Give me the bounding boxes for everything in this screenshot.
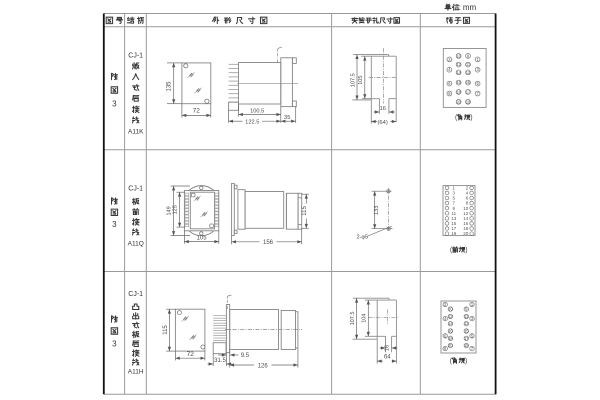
svg-text:126: 126 (258, 363, 269, 369)
svg-text:156: 156 (263, 240, 274, 246)
svg-text:3: 3 (112, 339, 117, 348)
svg-text:19: 19 (464, 343, 469, 348)
svg-text:): ) (470, 115, 472, 122)
svg-text:14: 14 (456, 70, 461, 75)
svg-text:115: 115 (302, 206, 308, 216)
svg-text:11: 11 (466, 62, 471, 67)
svg-text:20: 20 (463, 231, 469, 236)
svg-text:CJ-1: CJ-1 (128, 186, 143, 193)
svg-text:13: 13 (464, 321, 469, 326)
svg-text:10: 10 (448, 307, 453, 312)
svg-text:133: 133 (374, 206, 380, 216)
svg-text:15: 15 (466, 80, 471, 85)
svg-text:CJ-1: CJ-1 (128, 53, 143, 60)
svg-text:105: 105 (197, 236, 208, 242)
svg-text:16: 16 (448, 329, 453, 334)
svg-text:12: 12 (448, 314, 453, 319)
svg-text:CJ-1: CJ-1 (128, 291, 143, 298)
svg-text:122.5: 122.5 (245, 119, 259, 125)
svg-text:100.5: 100.5 (250, 108, 264, 114)
svg-text:3: 3 (112, 220, 117, 229)
svg-text:149: 149 (166, 206, 172, 215)
svg-text:2-φ5: 2-φ5 (356, 234, 368, 240)
svg-text:18: 18 (448, 336, 453, 341)
svg-text:72: 72 (193, 108, 201, 115)
svg-text:15: 15 (464, 329, 469, 334)
svg-text:11: 11 (464, 314, 469, 319)
svg-text:mm: mm (463, 3, 477, 12)
svg-text:A11Q: A11Q (128, 240, 144, 247)
svg-text:14: 14 (448, 321, 453, 326)
svg-text:105: 105 (358, 76, 364, 85)
svg-text:19: 19 (451, 231, 457, 236)
svg-text:A11H: A11H (128, 368, 144, 375)
svg-text:17: 17 (464, 336, 469, 341)
svg-text:10: 10 (456, 53, 461, 58)
svg-text:A11K: A11K (128, 128, 144, 135)
svg-text:3: 3 (112, 99, 117, 108)
svg-text:18: 18 (456, 89, 461, 94)
svg-text::: : (459, 3, 461, 12)
svg-text:16: 16 (385, 345, 391, 351)
svg-text:9.5: 9.5 (241, 353, 250, 359)
svg-text:20: 20 (448, 343, 453, 348)
svg-text:(64): (64) (377, 120, 387, 126)
svg-text:20: 20 (456, 99, 461, 104)
svg-text:72: 72 (187, 351, 195, 358)
svg-text:17: 17 (466, 89, 471, 94)
svg-text:): ) (465, 358, 467, 365)
svg-text:19: 19 (466, 99, 471, 104)
svg-text:16: 16 (380, 106, 386, 112)
svg-text:64: 64 (384, 355, 391, 361)
svg-text:): ) (465, 247, 467, 254)
svg-text:35: 35 (284, 115, 290, 121)
svg-text:104: 104 (362, 314, 368, 323)
svg-text:135: 135 (166, 81, 172, 92)
svg-text:13: 13 (466, 70, 471, 75)
svg-text:12: 12 (456, 62, 461, 67)
svg-text:107.5: 107.5 (350, 312, 356, 326)
svg-text:125: 125 (173, 205, 179, 214)
svg-text:115: 115 (163, 325, 169, 335)
svg-text:31.5: 31.5 (214, 358, 226, 364)
svg-text:107.5: 107.5 (350, 73, 356, 87)
svg-text:16: 16 (456, 80, 461, 85)
